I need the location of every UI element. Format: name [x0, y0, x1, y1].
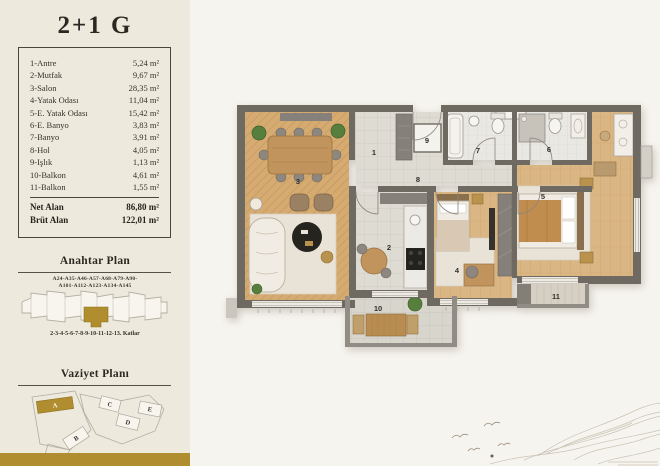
coffee-table [292, 222, 322, 252]
bed-headboard [577, 192, 584, 250]
site-plan-rule [18, 385, 171, 386]
site-block-c: C [99, 396, 121, 412]
room-areas-table: 1-Antre5,24 m² 2-Mutfak9,67 m² 3-Salon28… [18, 47, 171, 238]
room-label: 1-Antre [30, 57, 56, 69]
room-label-6: 6 [547, 145, 551, 154]
sink [469, 116, 479, 126]
info-sidebar: 2+1 G 1-Antre5,24 m² 2-Mutfak9,67 m² 3-S… [0, 0, 190, 466]
room-area: 1,13 m² [133, 156, 159, 168]
room-label: 11-Balkon [30, 181, 66, 193]
master-balcony-door [522, 277, 578, 283]
room-row: 8-Hol4,05 m² [30, 144, 159, 156]
balcony-chair [353, 315, 364, 334]
room-row: 9-Işlık1,13 m² [30, 156, 159, 168]
unit-type-title: 2+1 G [0, 12, 190, 40]
room-row: 6-E. Banyo3,83 m² [30, 119, 159, 131]
toilet [549, 119, 561, 134]
blanket [437, 220, 469, 251]
net-area-row: Net Alan86,80 m² [30, 201, 159, 214]
sofa [249, 218, 285, 292]
room-label: 10-Balkon [30, 169, 66, 181]
tv-panel [489, 208, 495, 250]
room-label-8: 8 [416, 175, 420, 184]
room-area: 3,83 m² [133, 119, 159, 131]
site-block-d: D [116, 414, 140, 431]
room-area: 9,67 m² [133, 69, 159, 81]
kitchen-cabinets [380, 193, 427, 204]
room-row: 11-Balkon1,55 m² [30, 181, 159, 193]
floor-plan: 1 2 3 4 5 6 7 8 9 10 11 [225, 97, 660, 355]
site-plan-drawing: A B C D E [18, 388, 171, 453]
room-area: 15,42 m² [129, 107, 159, 119]
room-label: 3-Salon [30, 82, 56, 94]
room-area: 11,04 m² [129, 94, 159, 106]
room-row: 4-Yatak Odası11,04 m² [30, 94, 159, 106]
key-plan-title: Anahtar Plan [0, 255, 190, 267]
toilet [492, 119, 504, 134]
bed-headboard [437, 194, 469, 201]
toilet-tank [549, 113, 562, 119]
desk-chair [466, 266, 478, 278]
room-label: 8-Hol [30, 144, 50, 156]
armchair [290, 194, 309, 211]
dining-table [268, 136, 332, 174]
room-area: 1,55 m² [133, 181, 159, 193]
kitchen-balcony-door [372, 291, 418, 297]
master-window [634, 198, 640, 252]
room-label: 7-Banyo [30, 131, 59, 143]
room-area: 5,24 m² [133, 57, 159, 69]
gross-area-row: Brüt Alan122,01 m² [30, 214, 159, 227]
net-area-value: 86,80 m² [126, 201, 159, 214]
room-area: 3,91 m² [133, 131, 159, 143]
nightstand [580, 252, 593, 263]
entry-wardrobe [396, 114, 412, 160]
room-area: 4,05 m² [133, 144, 159, 156]
plant [252, 126, 266, 140]
room-label-2: 2 [387, 243, 391, 252]
bench [594, 162, 616, 176]
key-plan-caption: 2-3-4-5-6-7-8-9-10-11-12-13. Katlar [0, 331, 190, 337]
bedroom-window [440, 299, 488, 305]
armchair [314, 194, 333, 211]
plant [408, 297, 422, 311]
brochure-page: 2+1 G 1-Antre5,24 m² 2-Mutfak9,67 m² 3-S… [0, 0, 660, 466]
birds [452, 422, 510, 451]
nightstand [472, 194, 483, 204]
room-area: 28,35 m² [129, 82, 159, 94]
totals-divider [30, 197, 159, 198]
room-label-3: 3 [296, 177, 300, 186]
room-label: 5-E. Yatak Odası [30, 107, 88, 119]
room-label: 9-Işlık [30, 156, 52, 168]
room-label-9: 9 [425, 136, 429, 145]
room-label-5: 5 [541, 192, 545, 201]
room-row: 7-Banyo3,91 m² [30, 131, 159, 143]
room-label-1: 1 [372, 148, 376, 157]
plant [252, 284, 262, 294]
exterior-ledge [226, 298, 237, 318]
blanket [519, 200, 561, 242]
bathtub [447, 114, 463, 158]
room-row: 3-Salon28,35 m² [30, 82, 159, 94]
pillow [562, 221, 575, 243]
pillow [562, 197, 575, 219]
key-plan-rule [18, 272, 171, 273]
key-plan-drawing [18, 289, 171, 330]
room-label: 2-Mutfak [30, 69, 62, 81]
coffee-table-decor [301, 230, 308, 234]
hall-corridor-floor [443, 165, 512, 186]
plant [331, 124, 345, 138]
site-block-a: A [36, 397, 73, 414]
gross-area-value: 122,01 m² [122, 214, 159, 227]
accent-bar [0, 453, 190, 466]
kitchen-chair [357, 244, 367, 254]
mountain-watermark [428, 390, 660, 466]
vanity-sink [571, 114, 585, 138]
exterior-ledge [641, 146, 652, 178]
gross-area-label: Brüt Alan [30, 214, 68, 227]
coffee-table-decor [305, 241, 313, 246]
kitchen-chair [381, 268, 391, 278]
room-row: 10-Balkon4,61 m² [30, 169, 159, 181]
key-plan-codes-line1: A24-A35-A46-A57-A68-A79-A90- [0, 276, 190, 283]
kitchen-sink [410, 215, 420, 225]
salon-window [252, 301, 342, 307]
room-row: 1-Antre5,24 m² [30, 57, 159, 69]
room-label: 4-Yatak Odası [30, 94, 78, 106]
stove [406, 248, 425, 270]
balcony-chair [407, 315, 418, 334]
room-label-11: 11 [552, 292, 560, 301]
room-label-10: 10 [374, 304, 382, 313]
net-area-label: Net Alan [30, 201, 64, 214]
room-row: 5-E. Yatak Odası15,42 m² [30, 107, 159, 119]
side-table [250, 198, 262, 210]
room-row: 2-Mutfak9,67 m² [30, 69, 159, 81]
gold-side-table [321, 251, 333, 263]
room-area: 4,61 m² [133, 169, 159, 181]
site-plan-title: Vaziyet Planı [0, 368, 190, 380]
tv-console [280, 113, 332, 121]
room-label: 6-E. Banyo [30, 119, 69, 131]
key-plan-highlighted-unit [84, 307, 108, 327]
watermark-dot [491, 455, 494, 458]
site-block-b: B [63, 426, 90, 449]
room-label-7: 7 [476, 146, 480, 155]
stool [600, 131, 610, 141]
